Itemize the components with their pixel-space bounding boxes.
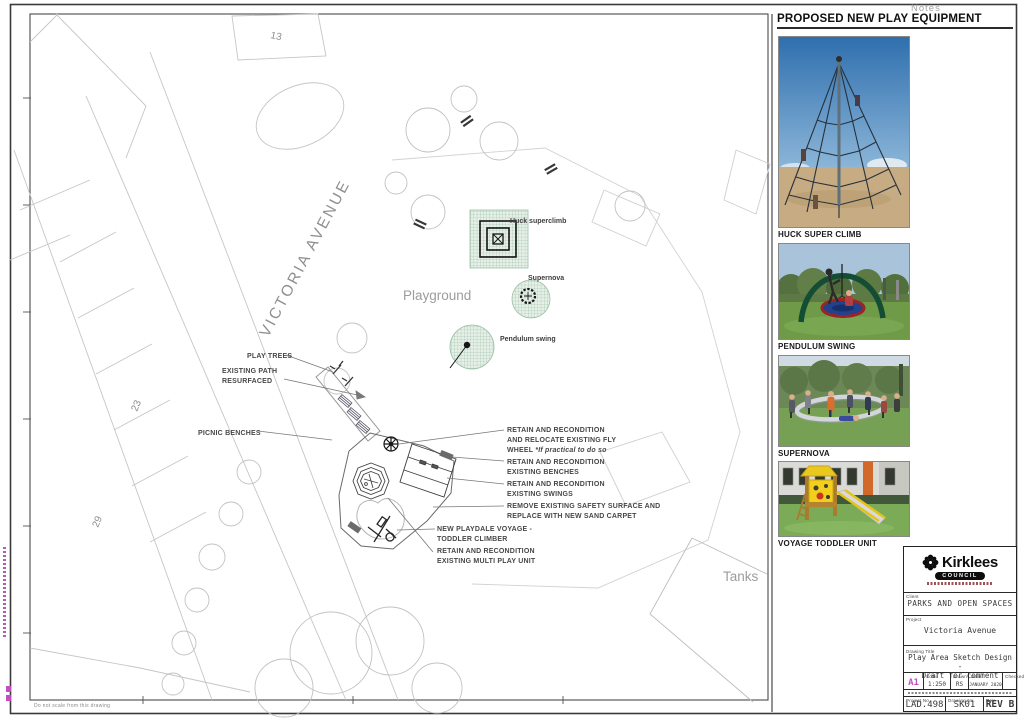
svg-text:RETAIN AND RECONDITION: RETAIN AND RECONDITION	[507, 481, 605, 488]
title-block-logo-row: Kirklees COUNCIL	[904, 547, 1016, 593]
equipment-item-huck: HUCK SUPER CLIMB	[778, 36, 908, 239]
huck-label: Huck superclimb	[510, 218, 566, 225]
svg-text:TODDLER CLIMBER: TODDLER CLIMBER	[437, 536, 508, 543]
left-edge-mark	[6, 695, 11, 701]
swings-icon	[400, 444, 456, 497]
voyage-toddler-unit-photo	[778, 461, 910, 537]
svg-text:PICNIC BENCHES: PICNIC BENCHES	[198, 430, 261, 437]
svg-text:RETAIN AND RECONDITION: RETAIN AND RECONDITION	[507, 427, 605, 434]
plot-number-29: 29	[91, 514, 106, 529]
resurfaced-path	[316, 361, 380, 441]
huck-super-climb-photo	[778, 36, 910, 228]
org-sub: COUNCIL	[935, 572, 985, 580]
svg-text:NEW PLAYDALE VOYAGE -: NEW PLAYDALE VOYAGE -	[437, 526, 533, 533]
project-value: Victoria Avenue	[904, 626, 1016, 635]
file-path-microtext	[908, 692, 1012, 695]
svg-text:WHEEL *If practical to do so: WHEEL *If practical to do so	[507, 447, 607, 454]
left-callouts: PLAY TREES EXISTING PATH RESURFACED PICN…	[198, 353, 292, 437]
leader-lines	[258, 355, 504, 552]
equipment-item-voyage: VOYAGE TODDLER UNIT	[778, 461, 908, 548]
client-value: PARKS AND OPEN SPACES	[904, 599, 1016, 608]
left-edge-microtext	[3, 545, 6, 637]
svg-text:RESURFACED: RESURFACED	[222, 378, 272, 385]
drawing-title-row: Drawing Title Play Area Sketch Design - …	[904, 646, 1016, 673]
equipment-item-label: PENDULUM SWING	[778, 342, 908, 351]
supernova-label: Supernova	[528, 275, 564, 282]
svg-text:AND RELOCATE EXISTING FLY: AND RELOCATE EXISTING FLY	[507, 437, 616, 444]
svg-text:PLAY TREES: PLAY TREES	[247, 353, 292, 360]
equipment-item-supernova: SUPERNOVA	[778, 355, 908, 458]
project-row: Project Victoria Avenue	[904, 616, 1016, 646]
multi-play-unit-icon	[353, 463, 389, 499]
supernova-icon	[512, 280, 550, 318]
svg-text:RETAIN AND RECONDITION: RETAIN AND RECONDITION	[507, 459, 605, 466]
pendulum-swing-photo	[778, 243, 910, 340]
supernova-photo	[778, 355, 910, 447]
title-block: Kirklees COUNCIL Client PARKS AND OPEN S…	[903, 546, 1017, 712]
sheet-size: A1	[908, 678, 919, 688]
footer-note: Do not scale from this drawing	[34, 703, 110, 709]
svg-text:RETAIN AND RECONDITION: RETAIN AND RECONDITION	[437, 548, 535, 555]
playground-label: Playground	[403, 288, 471, 303]
parcel-linework	[10, 14, 770, 702]
plot-number-13: 13	[269, 30, 283, 43]
svg-text:EXISTING SWINGS: EXISTING SWINGS	[507, 491, 573, 498]
meta-row: A1 Scale1:250 DrawnRS DateJANUARY 2020 C…	[904, 673, 1016, 690]
picnic-bench-icon	[338, 395, 370, 434]
org-name: Kirklees	[942, 554, 998, 571]
file-path-row	[904, 690, 1016, 697]
plot-number-23: 23	[130, 398, 145, 413]
pendulum-label: Pendulum swing	[500, 336, 556, 343]
svg-text:EXISTING BENCHES: EXISTING BENCHES	[507, 469, 579, 476]
drawn-value: RS	[956, 681, 963, 688]
equipment-item-label: HUCK SUPER CLIMB	[778, 230, 908, 239]
toddler-climber-icon	[368, 516, 396, 542]
scale-value: 1:250	[928, 681, 946, 688]
svg-text:REPLACE WITH NEW SAND CARPET: REPLACE WITH NEW SAND CARPET	[507, 513, 637, 520]
pendulum-swing-icon	[450, 325, 494, 369]
drawing-sheet: VICTORIA AVENUE Playground Tanks 13 23 2…	[0, 0, 1024, 720]
date-value: JANUARY 2020	[969, 683, 1002, 688]
svg-text:EXISTING PATH: EXISTING PATH	[222, 368, 277, 375]
equipment-item-label: VOYAGE TODDLER UNIT	[778, 539, 908, 548]
street-label: VICTORIA AVENUE	[257, 177, 354, 340]
svg-text:REMOVE EXISTING SAFETY SURFACE: REMOVE EXISTING SAFETY SURFACE AND	[507, 503, 660, 510]
numbers-row: Project No.LAD.498 Drawing No.SK01 RevRE…	[904, 697, 1016, 711]
right-callouts: RETAIN AND RECONDITION AND RELOCATE EXIS…	[437, 427, 660, 565]
svg-text:EXISTING MULTI PLAY UNIT: EXISTING MULTI PLAY UNIT	[437, 558, 536, 565]
equipment-item-label: SUPERNOVA	[778, 449, 908, 458]
fly-wheel-icon	[384, 437, 398, 451]
client-row: Client PARKS AND OPEN SPACES	[904, 593, 1016, 616]
tree-outlines	[162, 86, 645, 717]
equipment-item-pendulum: PENDULUM SWING	[778, 243, 908, 351]
panel-title: PROPOSED NEW PLAY EQUIPMENT	[777, 13, 1013, 29]
tanks-label: Tanks	[723, 569, 759, 584]
org-address-microtext	[927, 582, 993, 585]
kirklees-logo-icon	[922, 554, 939, 571]
left-edge-mark	[6, 686, 11, 692]
